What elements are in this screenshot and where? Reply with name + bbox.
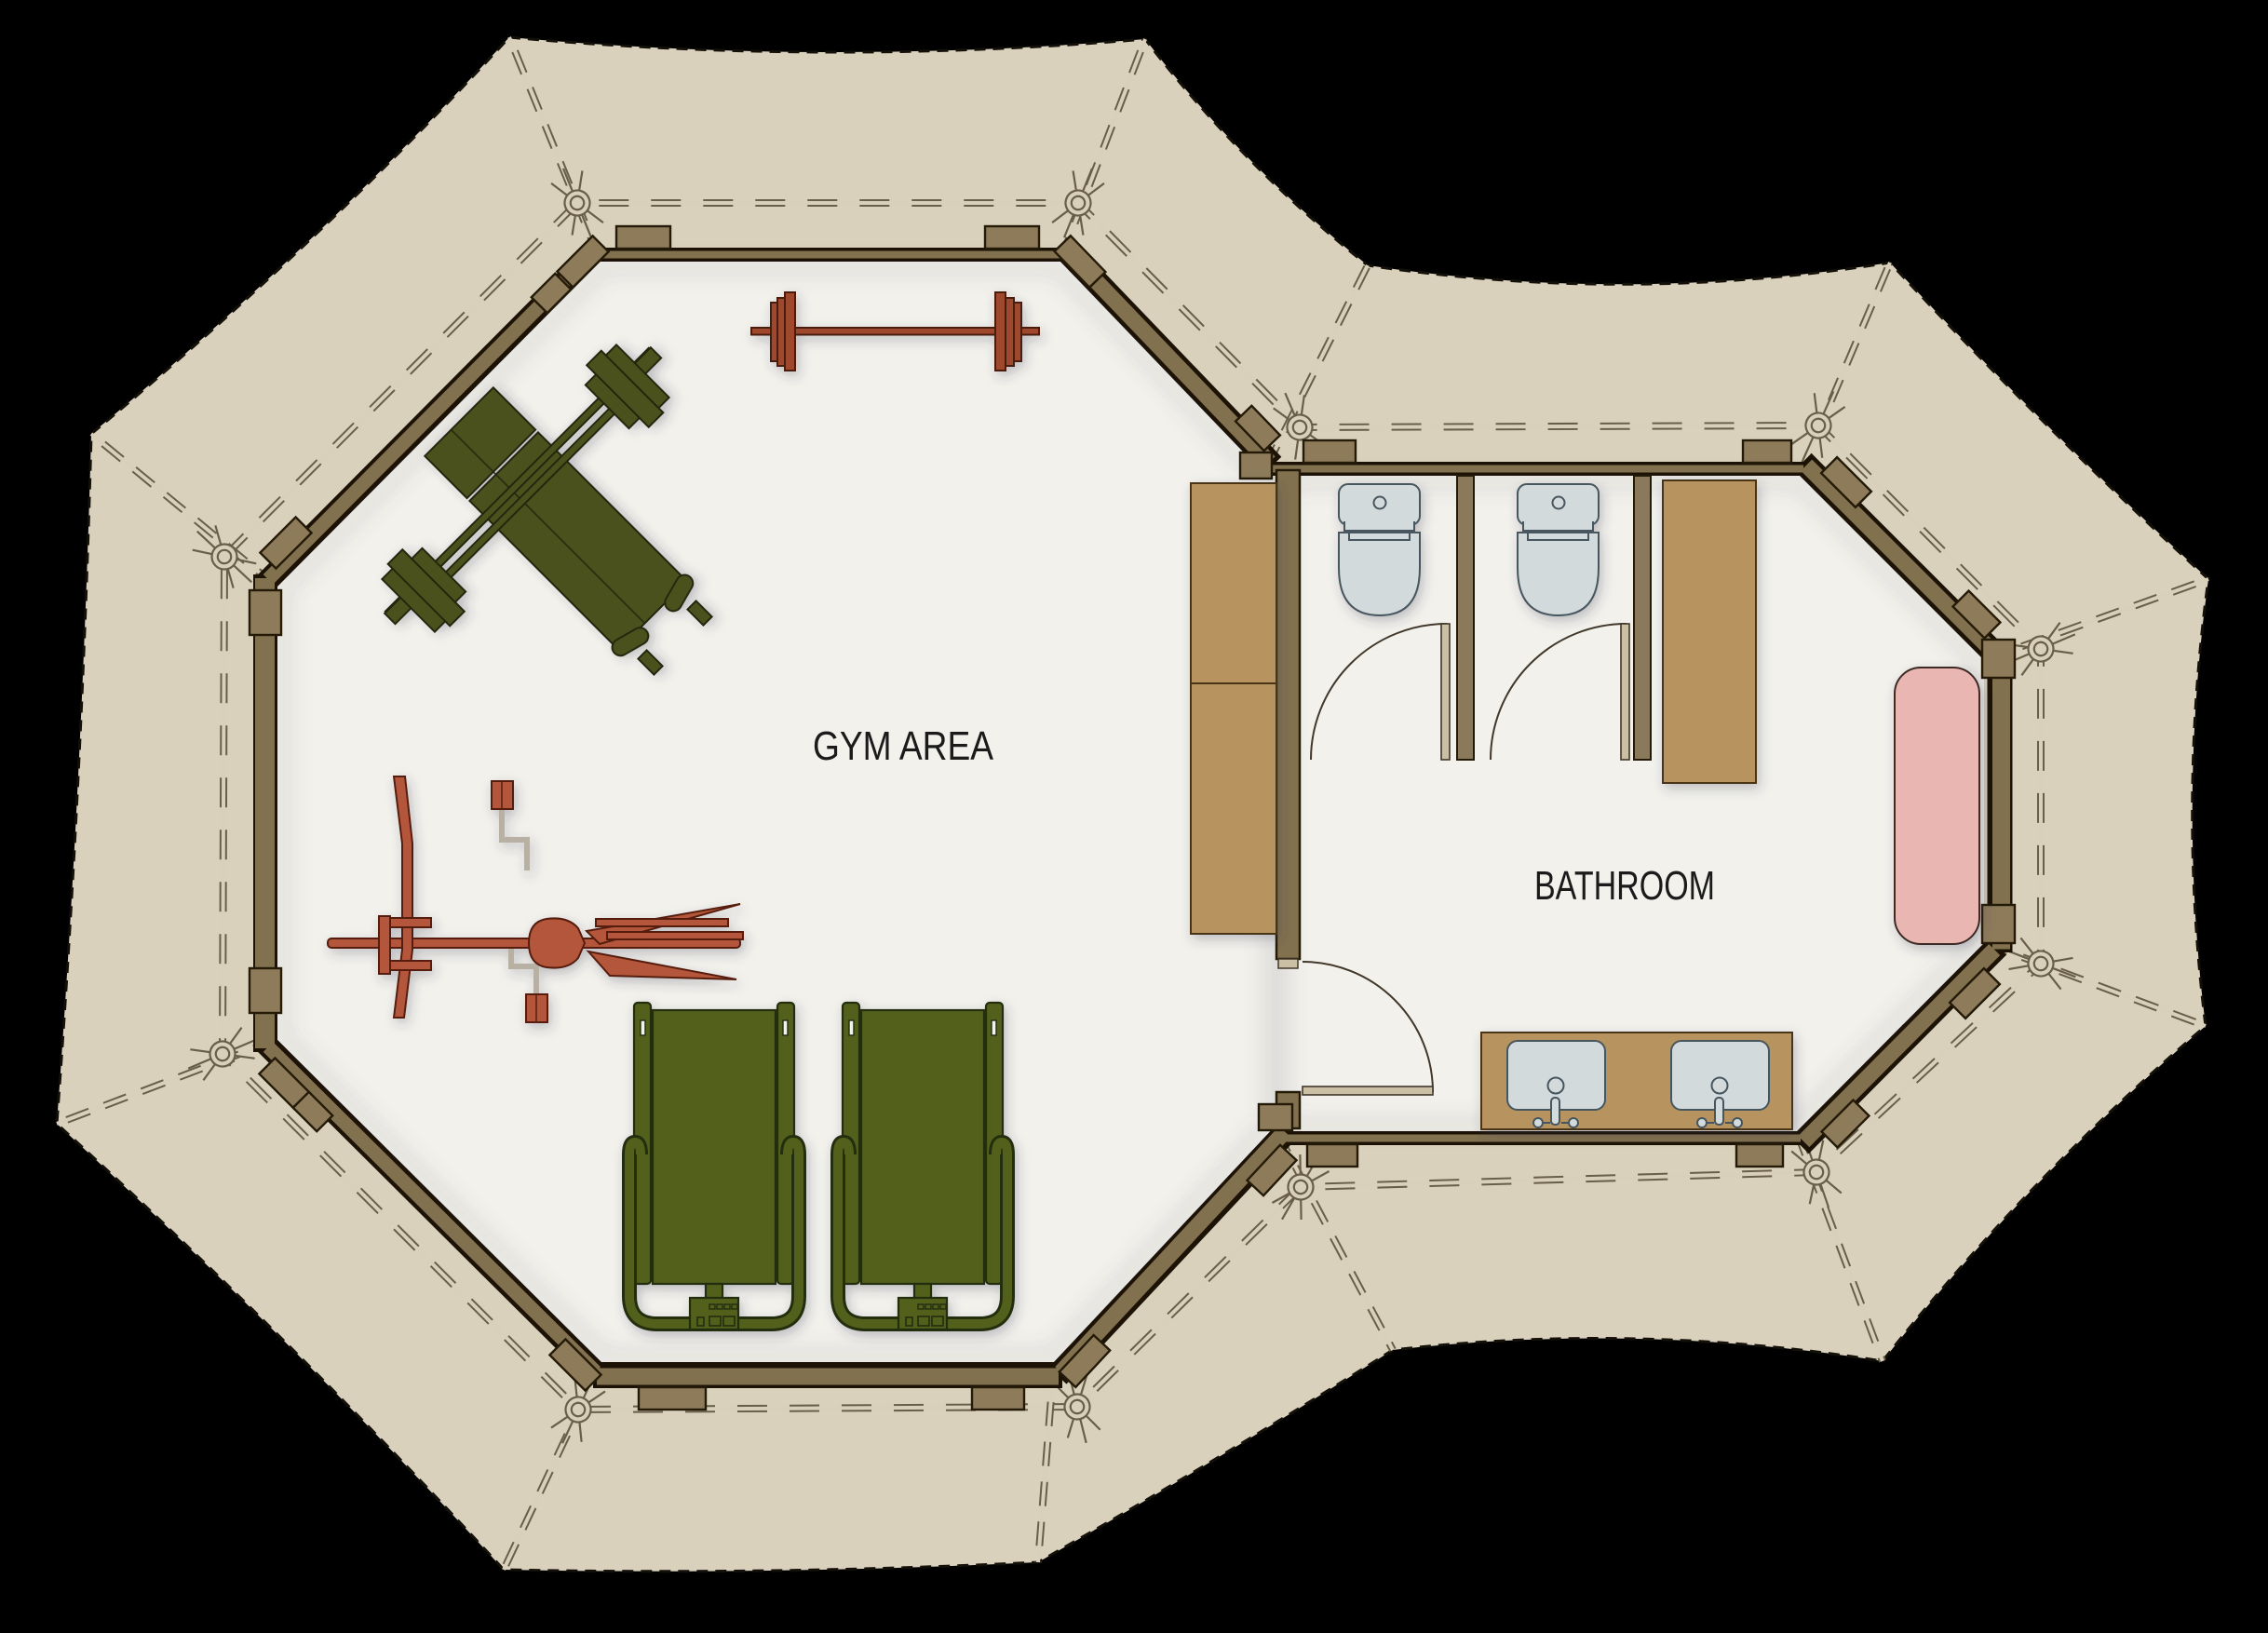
svg-text:BATHROOM: BATHROOM [1534, 863, 1715, 909]
svg-text:GYM AREA: GYM AREA [813, 723, 994, 769]
